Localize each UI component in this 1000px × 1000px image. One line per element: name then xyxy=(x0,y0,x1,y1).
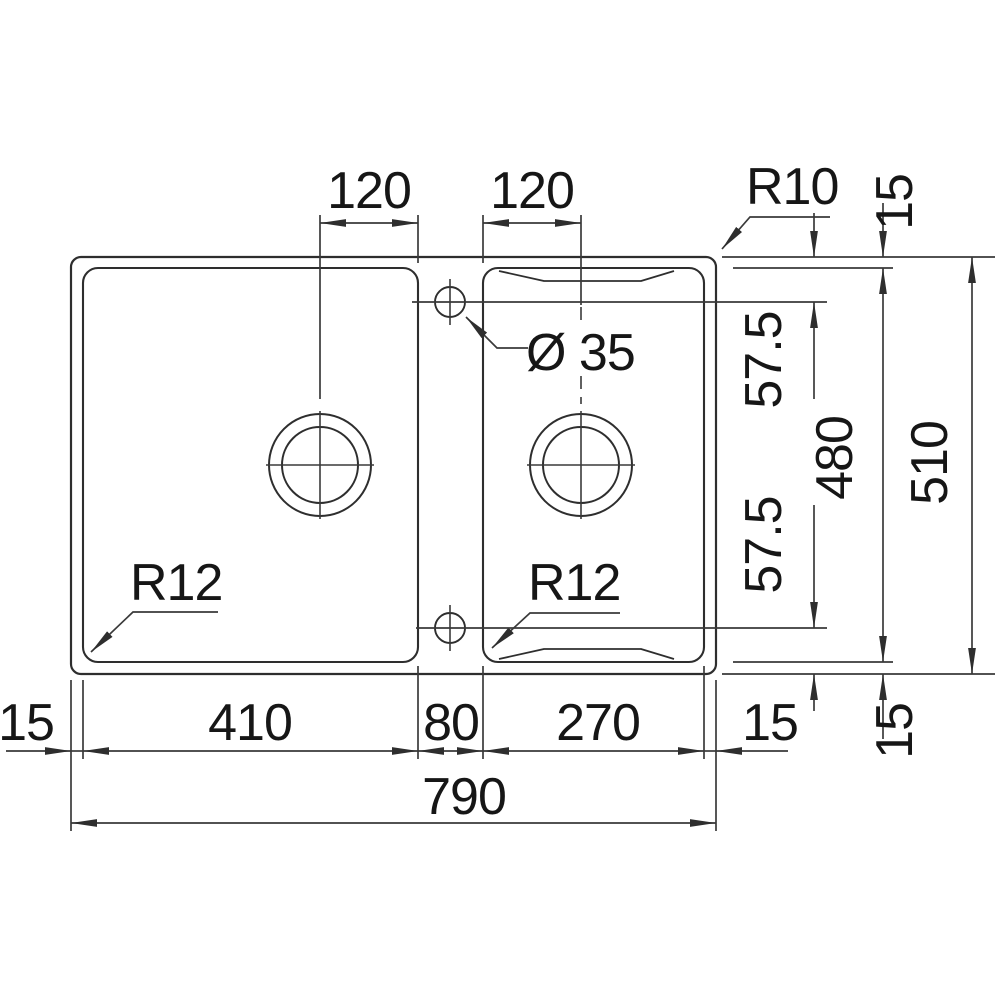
dim-label-80: 80 xyxy=(423,694,479,752)
dim-label-57-5-top: 57.5 xyxy=(735,311,793,408)
dim-label-15-right: 15 xyxy=(742,694,798,752)
dim-label-120-left: 120 xyxy=(327,162,411,220)
leader-hole-diameter xyxy=(466,317,528,348)
leader-r12-left xyxy=(91,612,218,652)
drain-holes-group xyxy=(266,411,635,519)
dim-label-270: 270 xyxy=(556,694,640,752)
callouts-group: R10 Ø 35 R12 R12 xyxy=(91,158,838,652)
tap-holes-group xyxy=(435,279,465,651)
dim-label-15-left: 15 xyxy=(0,694,54,752)
dim-label-15-top: 15 xyxy=(866,174,924,230)
label-r10: R10 xyxy=(746,158,838,216)
dim-label-410: 410 xyxy=(208,694,292,752)
dim-label-57-5-bottom: 57.5 xyxy=(735,496,793,593)
dim-label-510: 510 xyxy=(901,421,959,505)
bottom-dimensions-group: 15 410 80 270 15 790 xyxy=(0,666,798,831)
half-bowl-top-ledge xyxy=(499,271,674,281)
label-r12-right: R12 xyxy=(528,554,620,612)
label-r12-left: R12 xyxy=(130,554,222,612)
dim-label-480: 480 xyxy=(806,416,864,500)
sink-dimension-drawing: 120 120 R10 Ø 35 R12 R12 57.5 57.5 15 xyxy=(0,0,1000,1000)
half-bowl-bottom-ledge xyxy=(499,649,674,659)
dim-label-15-bottom-right: 15 xyxy=(866,703,924,759)
dim-label-790: 790 xyxy=(422,768,506,826)
drawing-canvas: 120 120 R10 Ø 35 R12 R12 57.5 57.5 15 xyxy=(0,0,1000,1000)
label-hole-diameter: Ø 35 xyxy=(526,324,635,382)
dim-label-120-right: 120 xyxy=(490,162,574,220)
leader-r12-right xyxy=(492,613,620,648)
